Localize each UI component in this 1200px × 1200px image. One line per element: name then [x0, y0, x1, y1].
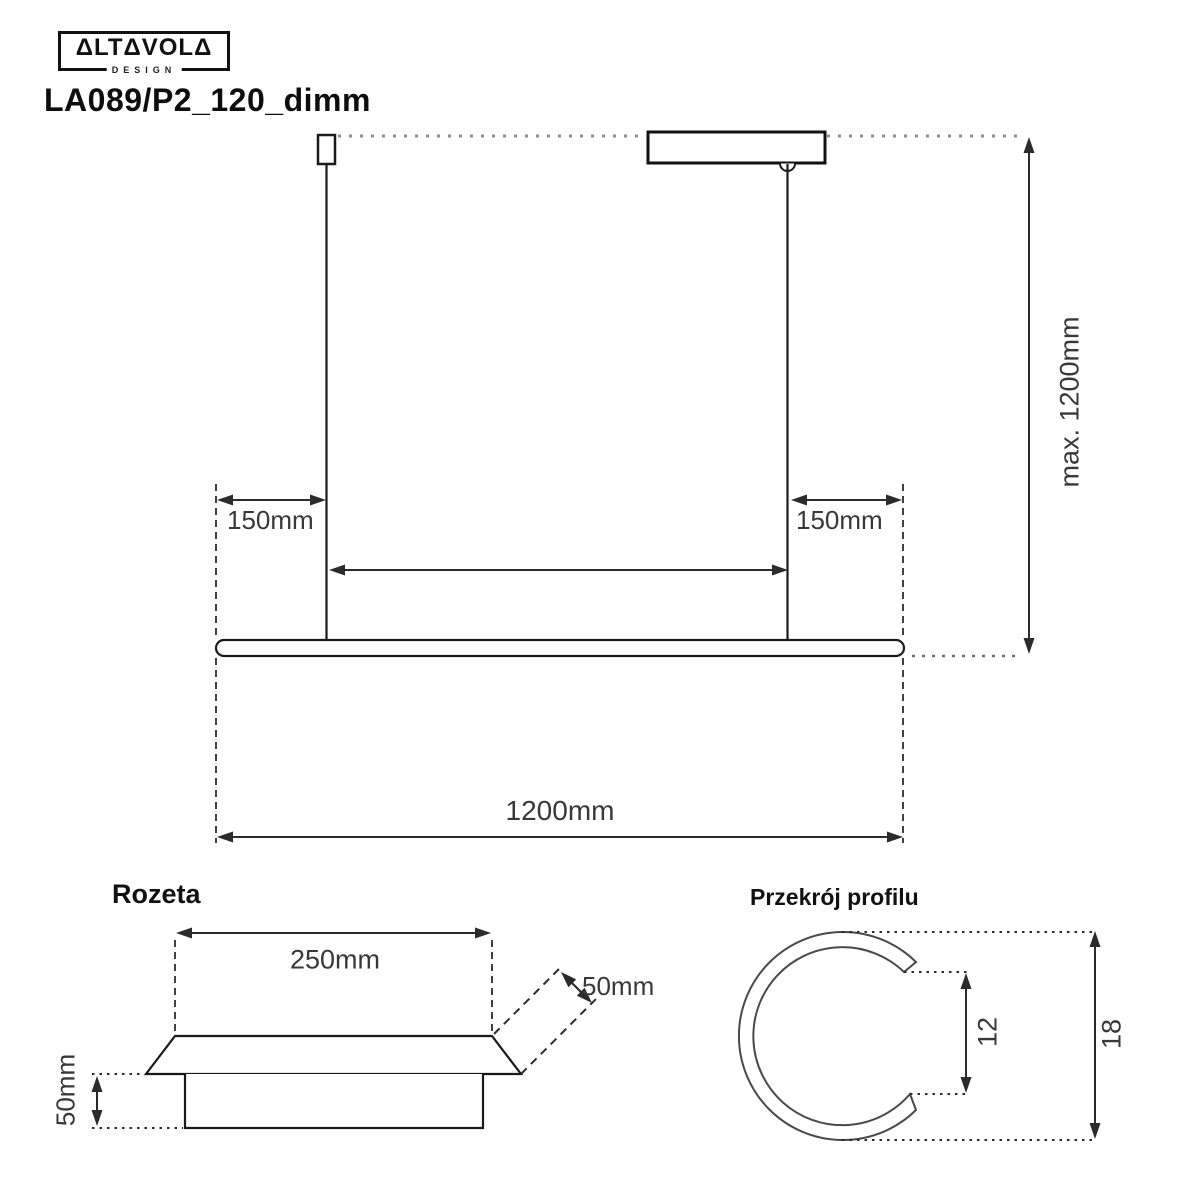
- dim-label-total-width: 1200mm: [506, 795, 615, 827]
- profile-title: Przekrój profilu: [750, 884, 919, 911]
- arrowhead: [887, 832, 903, 843]
- rozeta-cone: [146, 1036, 521, 1074]
- dim-label-rozeta-edge: 50mm: [582, 971, 654, 1002]
- rozeta-base: [185, 1074, 483, 1128]
- dim-label-right-offset: 150mm: [796, 505, 883, 536]
- spec-sheet: ΔLTΔVOLΔ DESIGN LA089/P2_120_dimm 150mm …: [0, 0, 1200, 1200]
- arrowhead: [791, 495, 807, 506]
- dim-label-rozeta-width: 250mm: [290, 945, 380, 976]
- arrowhead: [1024, 638, 1035, 654]
- arrowhead: [1090, 931, 1101, 947]
- product-code: LA089/P2_120_dimm: [44, 82, 371, 119]
- lamp-bar: [216, 640, 904, 656]
- arrowhead: [1024, 137, 1035, 153]
- drawing-linework: [0, 0, 1200, 1200]
- ceiling-canopy: [648, 132, 825, 163]
- dim-label-max-height: max. 1200mm: [1055, 316, 1086, 487]
- arrowhead: [886, 495, 902, 506]
- profile-dotted-lines: [842, 932, 1096, 1140]
- profile-c-section: [739, 932, 916, 1140]
- arrowhead: [772, 565, 788, 576]
- arrowhead: [92, 1076, 103, 1092]
- brand-logo: ΔLTΔVOLΔ DESIGN: [58, 31, 230, 71]
- brand-subtitle: DESIGN: [107, 65, 182, 75]
- arrowhead: [961, 1077, 972, 1093]
- arrowhead: [1090, 1123, 1101, 1139]
- arrowhead: [310, 495, 326, 506]
- dim-label-left-offset: 150mm: [227, 505, 314, 536]
- brand-name: ΔLTΔVOLΔ: [76, 36, 213, 60]
- arrowhead: [92, 1110, 103, 1126]
- arrowhead: [176, 928, 192, 939]
- dim-label-rozeta-height: 50mm: [51, 1054, 82, 1126]
- suspension-cap: [318, 135, 335, 164]
- arrowhead: [961, 973, 972, 989]
- rozeta-title: Rozeta: [112, 879, 201, 910]
- arrowhead: [217, 832, 233, 843]
- arrowhead: [475, 928, 491, 939]
- dim-label-profile-opening: 12: [973, 1017, 1004, 1047]
- arrowhead: [217, 495, 233, 506]
- arrowhead: [329, 565, 345, 576]
- dim-label-profile-diameter: 18: [1097, 1019, 1128, 1049]
- rozeta-height-dotted: [92, 1074, 183, 1128]
